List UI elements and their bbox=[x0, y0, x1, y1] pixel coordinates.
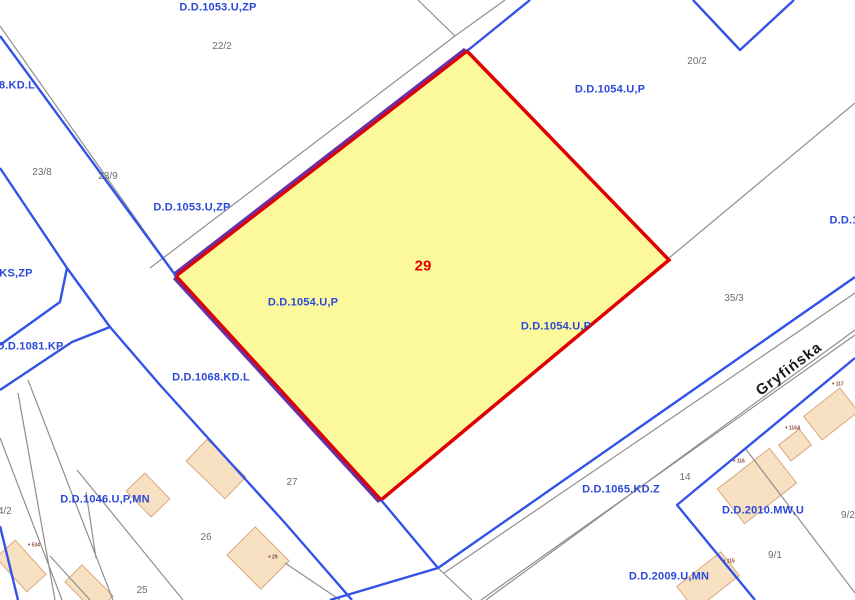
cadastral-line bbox=[745, 448, 855, 593]
cadastral-line bbox=[669, 103, 855, 258]
zoning-boundary-line bbox=[0, 36, 176, 276]
building-footprint bbox=[227, 527, 289, 589]
building-footprint bbox=[0, 540, 46, 592]
building-footprint bbox=[717, 448, 796, 523]
map-canvas[interactable]: D.D.1053.U,ZPD.D.1053.U,ZPD.D.1054.U,PD.… bbox=[0, 0, 855, 600]
road-edge-line bbox=[481, 335, 855, 600]
building-footprint bbox=[126, 473, 170, 517]
selected-parcel-group bbox=[174, 49, 669, 502]
cadastral-line bbox=[285, 563, 340, 600]
zoning-boundary-line bbox=[0, 268, 67, 345]
building-footprint bbox=[804, 388, 855, 440]
zoning-boundary-line bbox=[467, 0, 530, 51]
building-footprint bbox=[677, 552, 740, 600]
zoning-boundary-line bbox=[381, 500, 438, 568]
zoning-boundary-line bbox=[693, 0, 794, 50]
cadastral-line bbox=[438, 568, 472, 600]
cadastral-line bbox=[86, 492, 96, 558]
building-footprint bbox=[779, 429, 812, 461]
selected-parcel-29[interactable] bbox=[176, 51, 669, 500]
map-viewport[interactable]: { "map": { "type": "cadastral-zoning-pla… bbox=[0, 0, 855, 600]
cadastral-line bbox=[28, 380, 113, 600]
map-graphics bbox=[0, 0, 855, 600]
zoning-boundary-line bbox=[0, 327, 110, 390]
